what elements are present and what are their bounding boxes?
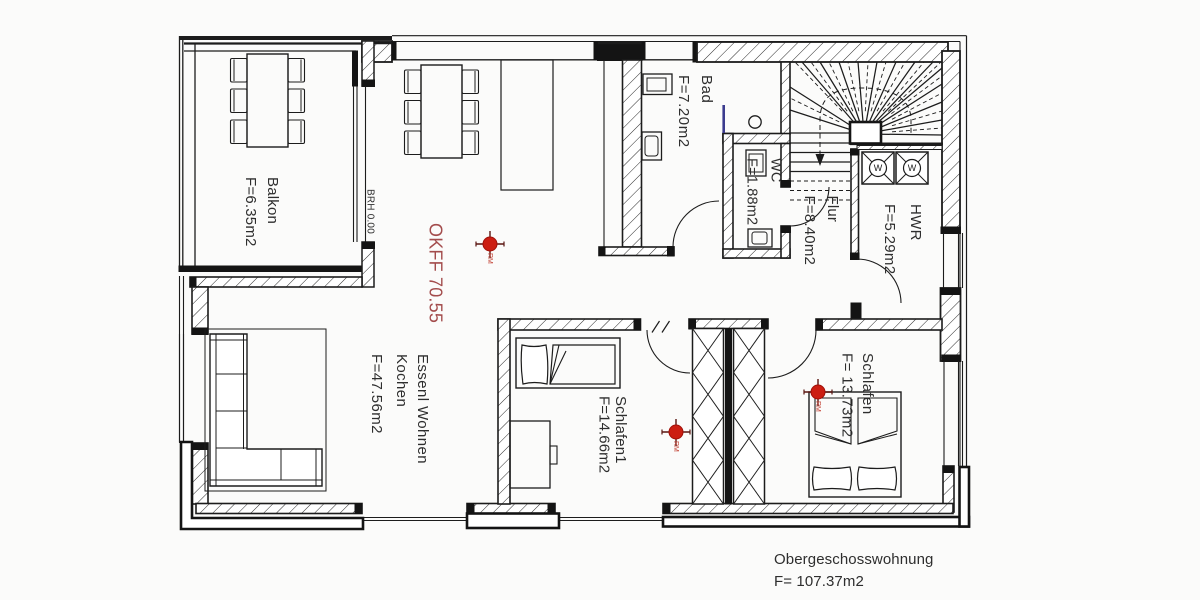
svg-text:W: W: [874, 163, 883, 173]
svg-text:Obergeschosswohnung: Obergeschosswohnung: [774, 551, 934, 568]
svg-text:Schlafen: Schlafen: [859, 353, 876, 415]
svg-text:RM: RM: [486, 253, 493, 264]
svg-text:BRH 0.00: BRH 0.00: [365, 189, 376, 234]
svg-text:RM: RM: [814, 401, 821, 412]
svg-text:Flur: Flur: [824, 196, 841, 223]
svg-text:F=7.20m2: F=7.20m2: [675, 75, 692, 148]
svg-text:F=14.66m2: F=14.66m2: [596, 396, 613, 473]
svg-text:F=47.56m2: F=47.56m2: [368, 354, 385, 434]
svg-text:W: W: [908, 163, 917, 173]
svg-text:F= 13.73m2: F= 13.73m2: [839, 353, 856, 437]
svg-text:F=6.35m2: F=6.35m2: [242, 177, 259, 247]
svg-text:F=8.40m2: F=8.40m2: [801, 196, 818, 266]
svg-text:Essenl Wohnen: Essenl Wohnen: [414, 354, 431, 464]
svg-text:WC: WC: [768, 158, 784, 183]
svg-text:Balkon: Balkon: [264, 177, 281, 224]
svg-text:Kochen: Kochen: [393, 354, 410, 407]
svg-text:F= 107.37m2: F= 107.37m2: [774, 573, 864, 590]
svg-text:F=5.29m2: F=5.29m2: [881, 204, 898, 274]
svg-text:F=1.88m2: F=1.88m2: [744, 158, 760, 225]
svg-text:RM: RM: [672, 441, 679, 452]
svg-text:OKFF 70.55: OKFF 70.55: [426, 223, 446, 323]
svg-text:Bad: Bad: [698, 75, 715, 104]
svg-text:Schlafen1: Schlafen1: [612, 396, 629, 464]
svg-text:HWR: HWR: [907, 204, 924, 241]
